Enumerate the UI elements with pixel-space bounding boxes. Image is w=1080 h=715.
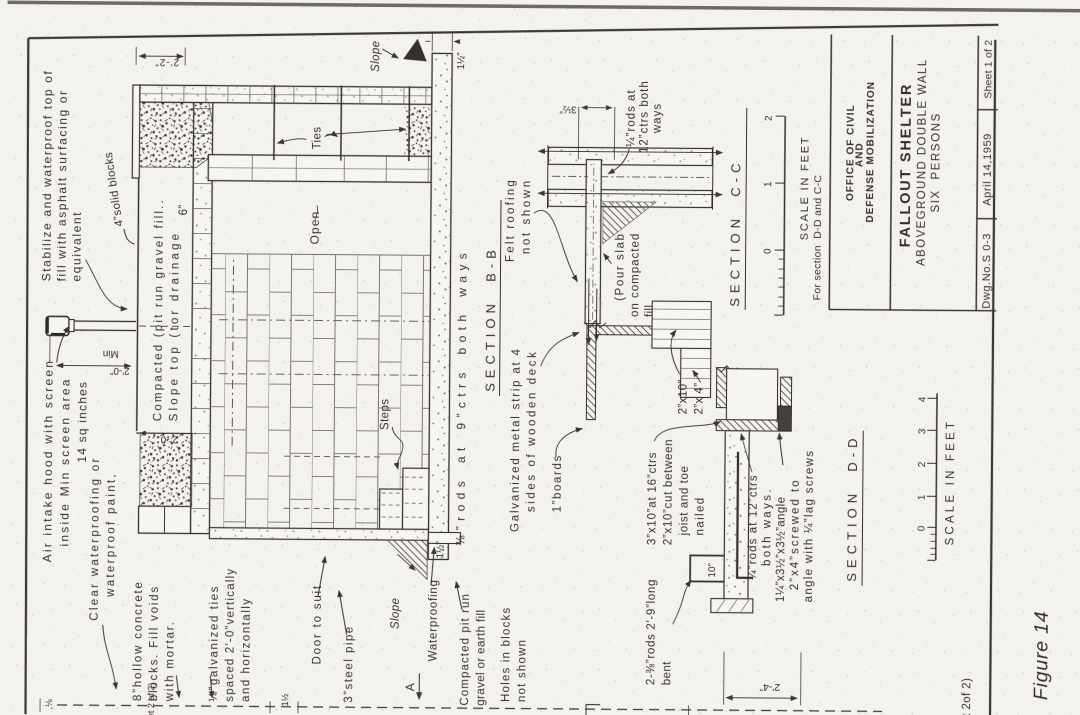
svg-text:2”x10”: 2”x10” [677,379,689,414]
svg-text:ABOVEGROUND DOUBLE WALL: ABOVEGROUND DOUBLE WALL [916,58,930,266]
svg-text:2: 2 [764,115,775,121]
svg-text:Open: Open [308,211,322,245]
svg-text:Figure 14: Figure 14 [1030,610,1053,700]
svg-text:1½”: 1½” [456,52,467,69]
svg-text:2'-0”: 2'-0” [110,365,130,376]
svg-text:Waterproofing: Waterproofing [427,579,440,661]
svg-text:2'-2”: 2'-2” [154,56,179,67]
svg-text:Galvanized metal strip at 4: Galvanized metal strip at 4 [509,347,522,532]
svg-text:joist and toe: joist and toe [678,465,691,536]
svg-text:Slope: Slope [390,598,402,630]
svg-text:10”: 10” [707,563,718,578]
svg-text:SCALE IN FEET: SCALE IN FEET [799,136,812,241]
svg-text:gravel or earth fill: gravel or earth fill [475,609,488,705]
svg-text:with mortar.: with mortar. [164,620,177,702]
svg-text:A: A [403,683,417,691]
svg-text:(Pour slab: (Pour slab [614,232,627,301]
svg-text:and horizontally: and horizontally [240,597,253,702]
svg-text:1¼”x3½”x3½”angle: 1¼”x3½”x3½”angle [775,497,788,603]
svg-text:sides of wooden deck: sides of wooden deck [526,350,539,513]
svg-text:6”: 6” [178,204,190,215]
svg-text:eet 2 of 2): eet 2 of 2) [146,683,156,715]
svg-text:1: 1 [917,494,928,500]
svg-text:1: 1 [763,181,774,187]
svg-text:Felt roofing: Felt roofing [505,178,518,262]
svg-text:8”hollow concrete: 8”hollow concrete [132,580,145,701]
svg-text:nailed: nailed [694,496,706,535]
svg-text:1”boards: 1”boards [552,454,564,512]
svg-text:angle with ¼”lag screws: angle with ¼”lag screws [803,450,816,603]
svg-text:2”x4”screwed to: 2”x4”screwed to [789,478,802,590]
svg-text:3: 3 [917,428,928,434]
svg-text:et 2of 2): et 2of 2) [961,678,973,715]
svg-text:2'-0: 2'-0 [160,433,178,444]
svg-text:3”x10”at 16”ctrs: 3”x10”at 16”ctrs [646,452,659,545]
svg-text:Slope: Slope [370,40,382,72]
svg-text:⅜”rods at 9”ctrs both ways: ⅜”rods at 9”ctrs both ways [453,248,469,546]
svg-text:Clear waterproofing or: Clear waterproofing or [89,456,102,620]
svg-text:2”x10”cut between: 2”x10”cut between [662,439,675,546]
svg-text:3½”: 3½” [559,103,576,114]
svg-text:equivalent: equivalent [69,211,84,282]
svg-text:waterproof paint,: waterproof paint, [105,472,118,598]
svg-text:inside Min screen area: inside Min screen area [57,377,72,546]
svg-text:For section D-D and C-C: For section D-D and C-C [811,175,824,301]
svg-text:Stabilize and waterproof top o: Stabilize and waterproof top of [39,70,55,282]
svg-text:bent: bent [661,661,673,685]
svg-text:Holes in blocks: Holes in blocks [500,607,513,702]
svg-text:AND: AND [854,142,865,167]
svg-text:both ways.: both ways. [761,487,774,566]
svg-text:2”x 4”: 2”x 4” [693,383,705,415]
svg-text:4: 4 [917,396,928,402]
svg-text:Slope top (tor drainage: Slope top (tor drainage [168,231,181,422]
svg-text:0: 0 [916,525,927,531]
svg-text:not shown: not shown [521,178,534,254]
svg-text:FALLOUT SHELTER: FALLOUT SHELTER [898,83,915,248]
svg-text:ways: ways [652,103,664,134]
svg-text:April 14,1959: April 14,1959 [982,133,995,206]
svg-text:0: 0 [763,248,774,254]
svg-text:2-⅜”rods 2'-9”long: 2-⅜”rods 2'-9”long [645,579,658,685]
svg-text:on compacted: on compacted [629,233,642,317]
svg-text:spaced 2'-0”vertically: spaced 2'-0”vertically [224,568,237,702]
svg-text:SECTION D-D: SECTION D-D [844,433,860,581]
svg-text:SECTION C-C: SECTION C-C [727,159,743,307]
svg-text:Steps: Steps [379,399,391,431]
svg-text:Min: Min [103,348,119,359]
svg-text:1½: 1½ [280,693,290,706]
svg-text:Dwg.No.S 0-3: Dwg.No.S 0-3 [981,233,994,309]
svg-text:not shown: not shown [516,639,528,702]
svg-text:DEFENSE MOBILIZATION: DEFENSE MOBILIZATION [865,81,877,223]
svg-text:¼”galvanized ties: ¼”galvanized ties [208,585,221,702]
svg-text:Compacted pit run: Compacted pit run [459,593,472,706]
svg-text:fill with asphalt surfacing or: fill with asphalt surfacing or [54,89,70,281]
svg-text:Ties: Ties [311,127,323,150]
svg-text:,⅛: ,⅛ [44,699,54,710]
svg-text:SCALE IN FEET: SCALE IN FEET [944,419,957,546]
svg-text:3”steel pipe: 3”steel pipe [343,625,356,703]
svg-text:Sheet 1 of 2: Sheet 1 of 2 [982,40,994,99]
svg-text:Compacted (pit run gravel fill: Compacted (pit run gravel fill.. [152,198,166,421]
svg-text:¼”rods at: ¼”rods at [625,89,637,147]
svg-text:1½”: 1½” [435,541,446,558]
svg-text:2'-4”: 2'-4” [759,681,780,693]
svg-text:SECTION B-B: SECTION B-B [483,245,499,392]
svg-text:¼”rods at 12”ctrs: ¼”rods at 12”ctrs [747,474,760,580]
svg-text:SIX PERSONS: SIX PERSONS [930,112,943,212]
svg-text:Air intake hood with screen: Air intake hood with screen [40,359,56,563]
svg-text:2: 2 [917,461,928,467]
svg-text:14 sq inches: 14 sq inches [75,381,90,463]
svg-text:12”ctrs both: 12”ctrs both [638,80,651,153]
